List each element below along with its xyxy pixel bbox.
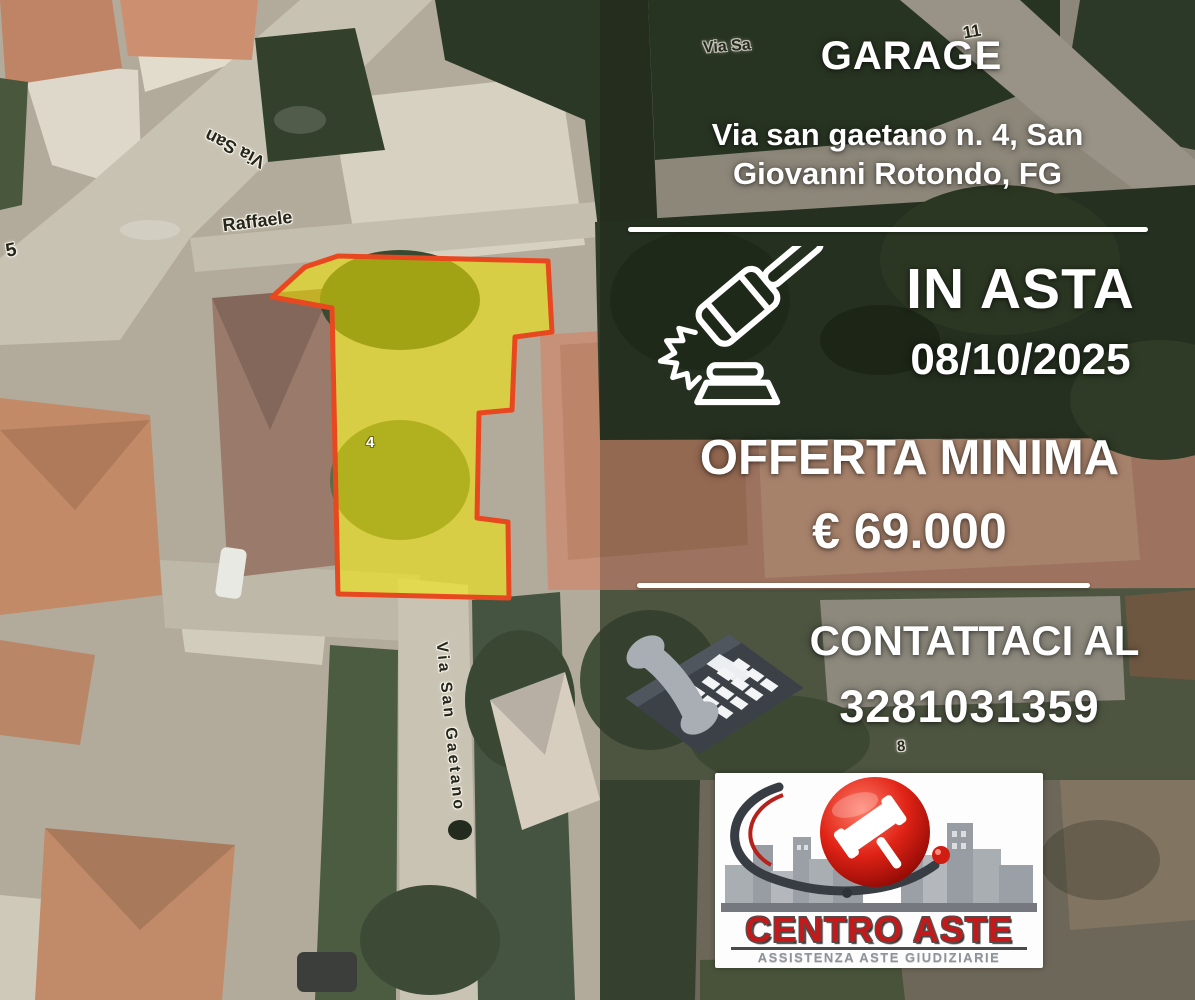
info-panel: GARAGE Via san gaetano n. 4, San Giovann…	[600, 0, 1195, 1000]
divider-top	[628, 227, 1148, 232]
contact-label: CONTATTACI AL	[772, 618, 1177, 664]
minimum-offer-amount: € 69.000	[600, 504, 1195, 559]
listing-title: GARAGE	[600, 34, 1195, 78]
auction-date: 08/10/2025	[858, 336, 1183, 384]
agency-logo: CENTRO ASTE ASSISTENZA ASTE GIUDIZIARIE	[715, 773, 1043, 968]
minimum-offer-label: OFFERTA MINIMA	[600, 432, 1195, 486]
gavel-icon	[642, 246, 857, 421]
divider-bottom	[637, 583, 1090, 588]
address-line-2: Giovanni Rotondo, FG	[733, 156, 1062, 191]
agency-name: CENTRO ASTE	[715, 909, 1043, 951]
auction-flyer: Via San Raffaele 5 Via Sa 11 8 Via San G…	[0, 0, 1195, 1000]
listing-address: Via san gaetano n. 4, San Giovanni Roton…	[600, 116, 1195, 194]
parked-car-dark	[297, 952, 357, 992]
contact-phone-number: 3281031359	[767, 682, 1172, 732]
agency-tagline: ASSISTENZA ASTE GIUDIZIARIE	[715, 950, 1043, 965]
parcel-number-label: 4	[366, 434, 374, 451]
auction-status: IN ASTA	[858, 258, 1183, 321]
address-line-1: Via san gaetano n. 4, San	[712, 117, 1084, 152]
